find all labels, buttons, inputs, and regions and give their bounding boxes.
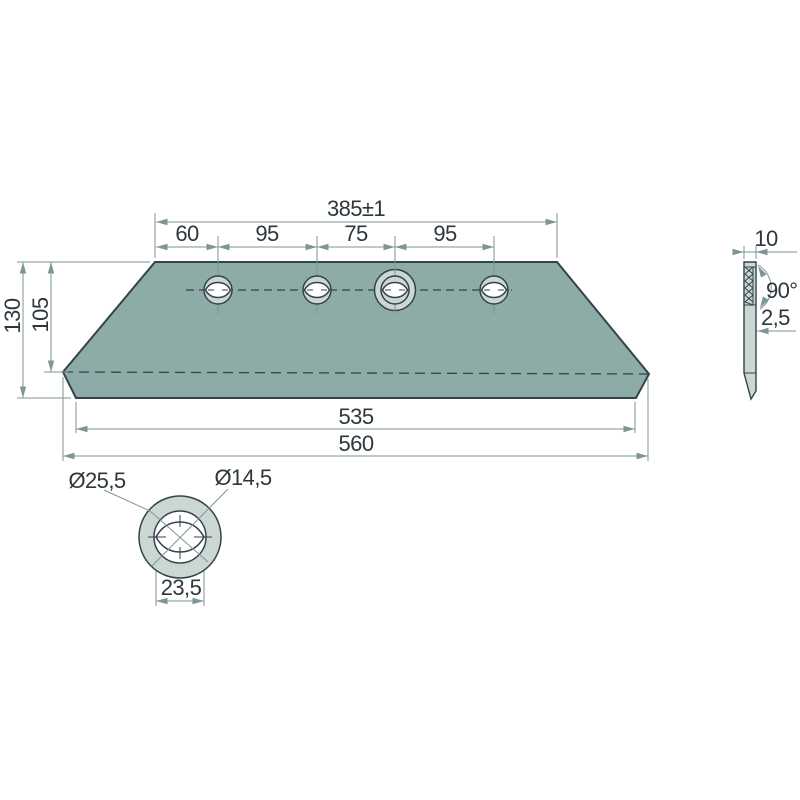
technical-drawing: 385±1 60 95 75 95 130 105 535 560 10 90°… — [0, 0, 800, 800]
dim-edge-land-label: 2,5 — [761, 305, 790, 330]
blade-outline — [63, 262, 649, 398]
detail-view — [104, 489, 228, 578]
dim-slot-width-label: 23,5 — [161, 575, 202, 600]
dim-edge-angle-label: 90° — [766, 278, 797, 303]
dim-bottom-total-label: 560 — [339, 431, 374, 456]
front-view — [63, 236, 649, 398]
dim-countersink-diameter-label: Ø25,5 — [69, 468, 126, 493]
dim-spacing-4-label: 95 — [433, 221, 457, 246]
dim-spacing-1-label: 60 — [175, 221, 199, 246]
dim-height-total-label: 130 — [0, 298, 25, 333]
dim-top-total-label: 385±1 — [327, 196, 385, 221]
dim-hole-diameter-label: Ø14,5 — [215, 465, 272, 490]
side-profile-outline — [744, 262, 756, 399]
dim-bottom-inner-label: 535 — [339, 404, 374, 429]
dim-thickness-label: 10 — [754, 226, 778, 251]
drawing-canvas: 385±1 60 95 75 95 130 105 535 560 10 90°… — [0, 0, 800, 800]
dim-height-edge-label: 105 — [28, 297, 53, 332]
dim-spacing-3-label: 75 — [344, 221, 368, 246]
dim-spacing-2-label: 95 — [255, 221, 279, 246]
